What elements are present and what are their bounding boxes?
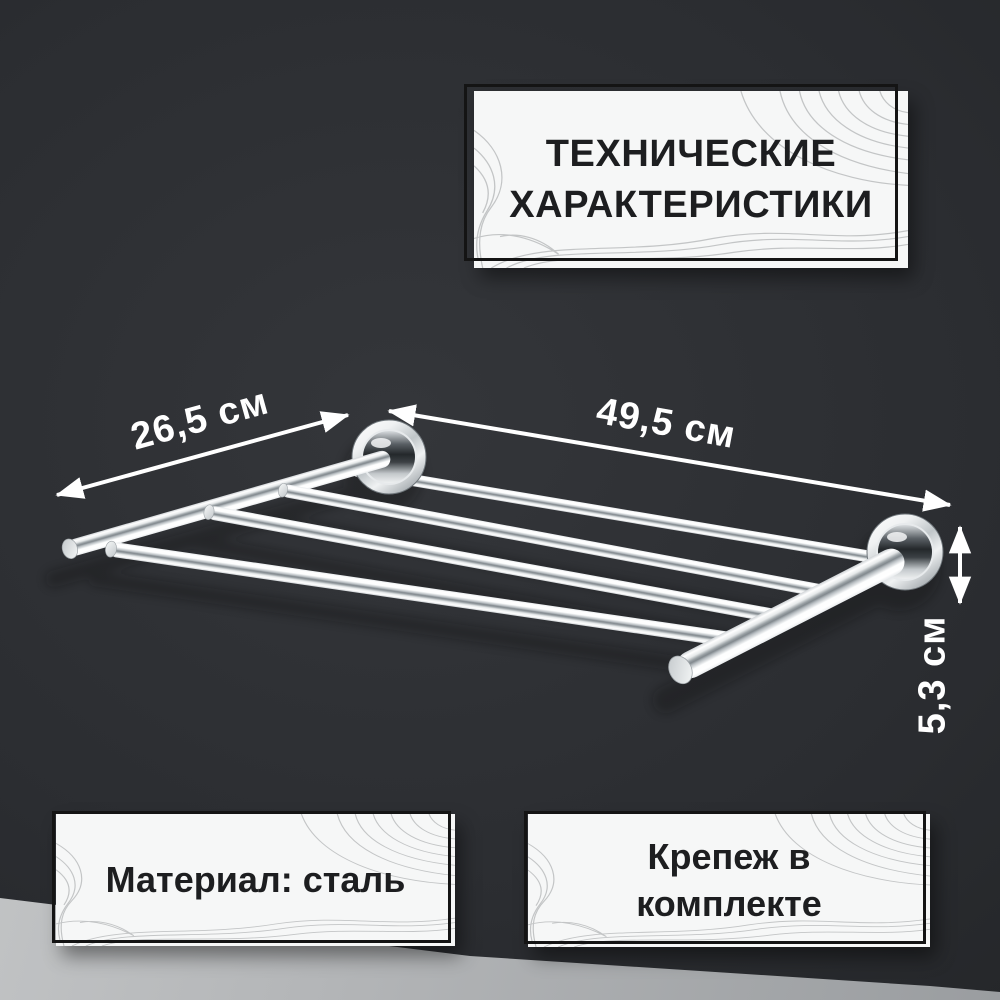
title-line-1: ТЕХНИЧЕСКИЕ (546, 129, 837, 180)
title-text: ТЕХНИЧЕСКИЕ ХАРАКТЕРИСТИКИ (474, 91, 908, 268)
hardware-text: Крепеж в комплекте (528, 814, 930, 947)
title-line-2: ХАРАКТЕРИСТИКИ (509, 180, 873, 231)
product-infographic: 26,5 см 49,5 см 5,3 см ТЕХНИЧЕСКИЕ ХАРАК… (0, 0, 1000, 1000)
hardware-box: Крепеж в комплекте (528, 814, 930, 947)
hardware-line-2: комплекте (636, 881, 822, 927)
material-box: Материал: сталь (56, 814, 455, 946)
title-box: ТЕХНИЧЕСКИЕ ХАРАКТЕРИСТИКИ (474, 91, 908, 268)
hardware-line-1: Крепеж в (648, 834, 811, 880)
material-text: Материал: сталь (106, 859, 406, 901)
height-dimension-label: 5,3 см (912, 616, 955, 735)
